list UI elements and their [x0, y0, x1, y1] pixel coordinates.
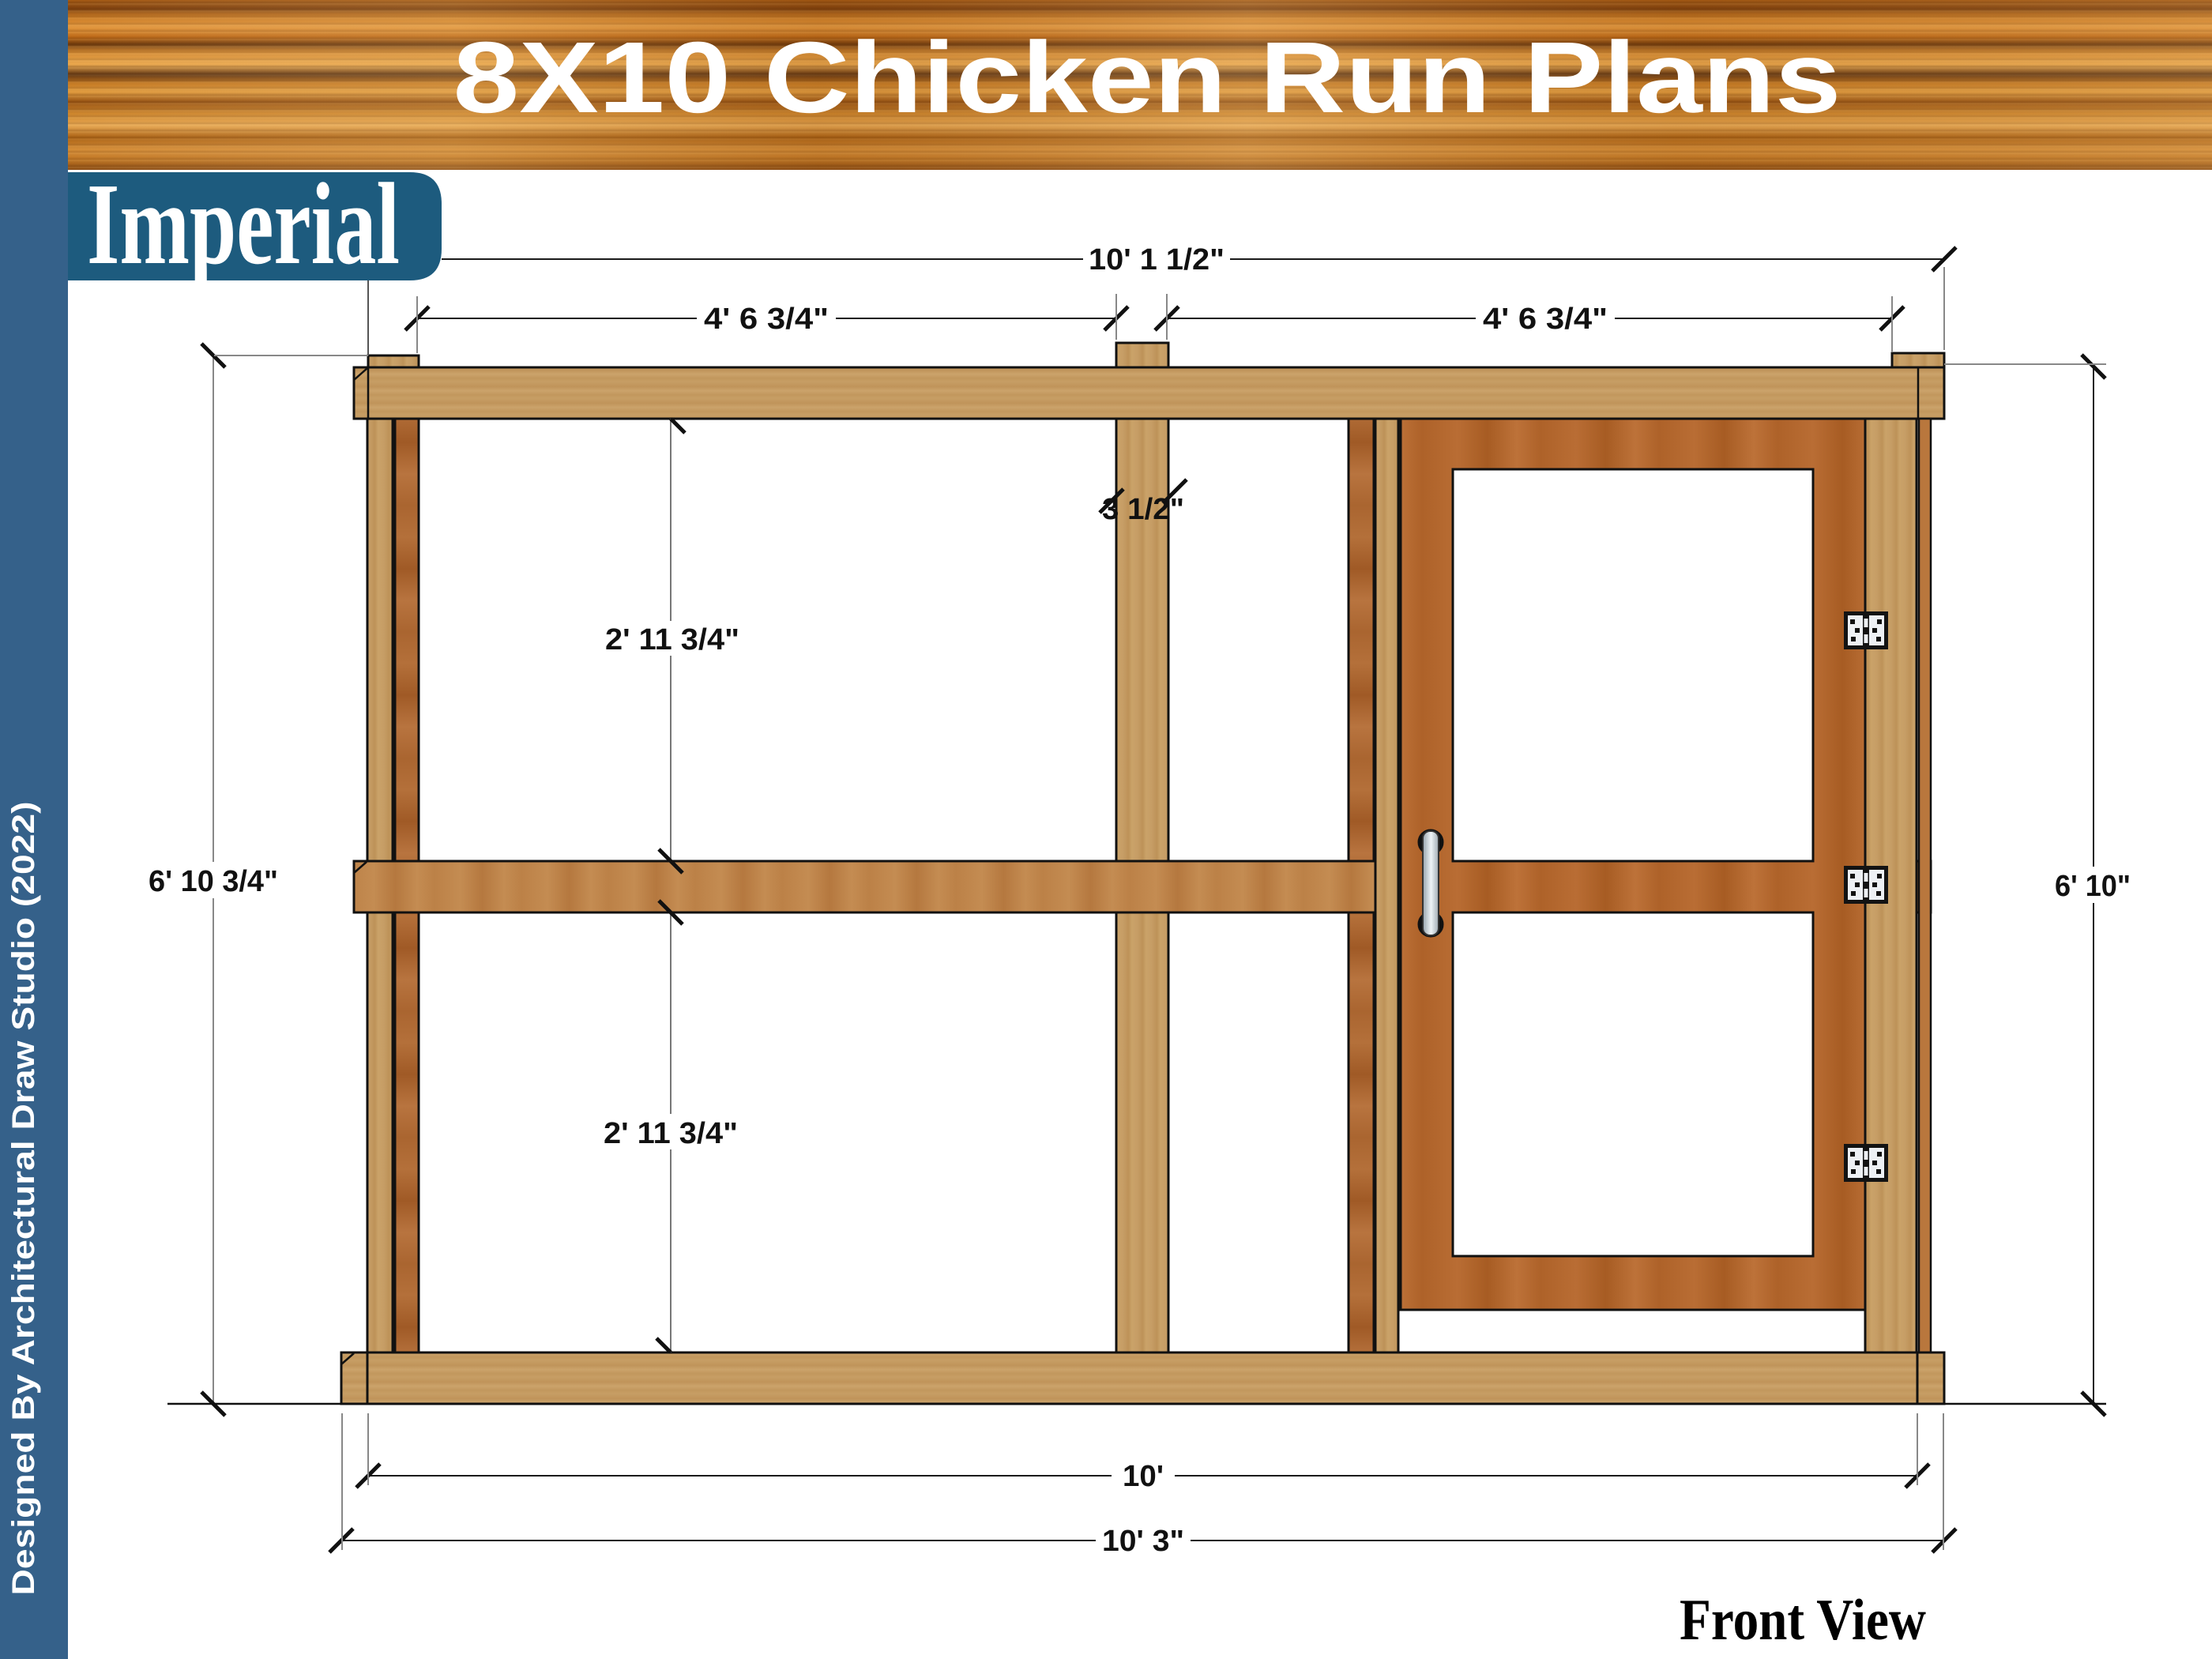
svg-text:10' 3": 10' 3" — [1102, 1525, 1184, 1558]
svg-text:Designed By Architectural Draw: Designed By Architectural Draw Studio (2… — [6, 802, 41, 1596]
svg-text:10' 1 1/2": 10' 1 1/2" — [1089, 243, 1224, 276]
svg-text:8X10 Chicken Run Plans: 8X10 Chicken Run Plans — [453, 21, 1841, 134]
svg-text:6' 10": 6' 10" — [2055, 870, 2131, 903]
svg-text:Front View: Front View — [1680, 1588, 1926, 1653]
svg-text:2' 11 3/4": 2' 11 3/4" — [604, 1117, 738, 1150]
svg-text:2' 11 3/4": 2' 11 3/4" — [605, 623, 739, 656]
svg-text:4' 6 3/4": 4' 6 3/4" — [704, 303, 829, 336]
svg-text:3 1/2": 3 1/2" — [1102, 493, 1184, 526]
svg-text:4' 6 3/4": 4' 6 3/4" — [1483, 303, 1608, 336]
svg-text:6' 10 3/4": 6' 10 3/4" — [149, 865, 278, 898]
svg-text:10': 10' — [1123, 1460, 1164, 1493]
svg-text:Imperial: Imperial — [87, 160, 400, 289]
